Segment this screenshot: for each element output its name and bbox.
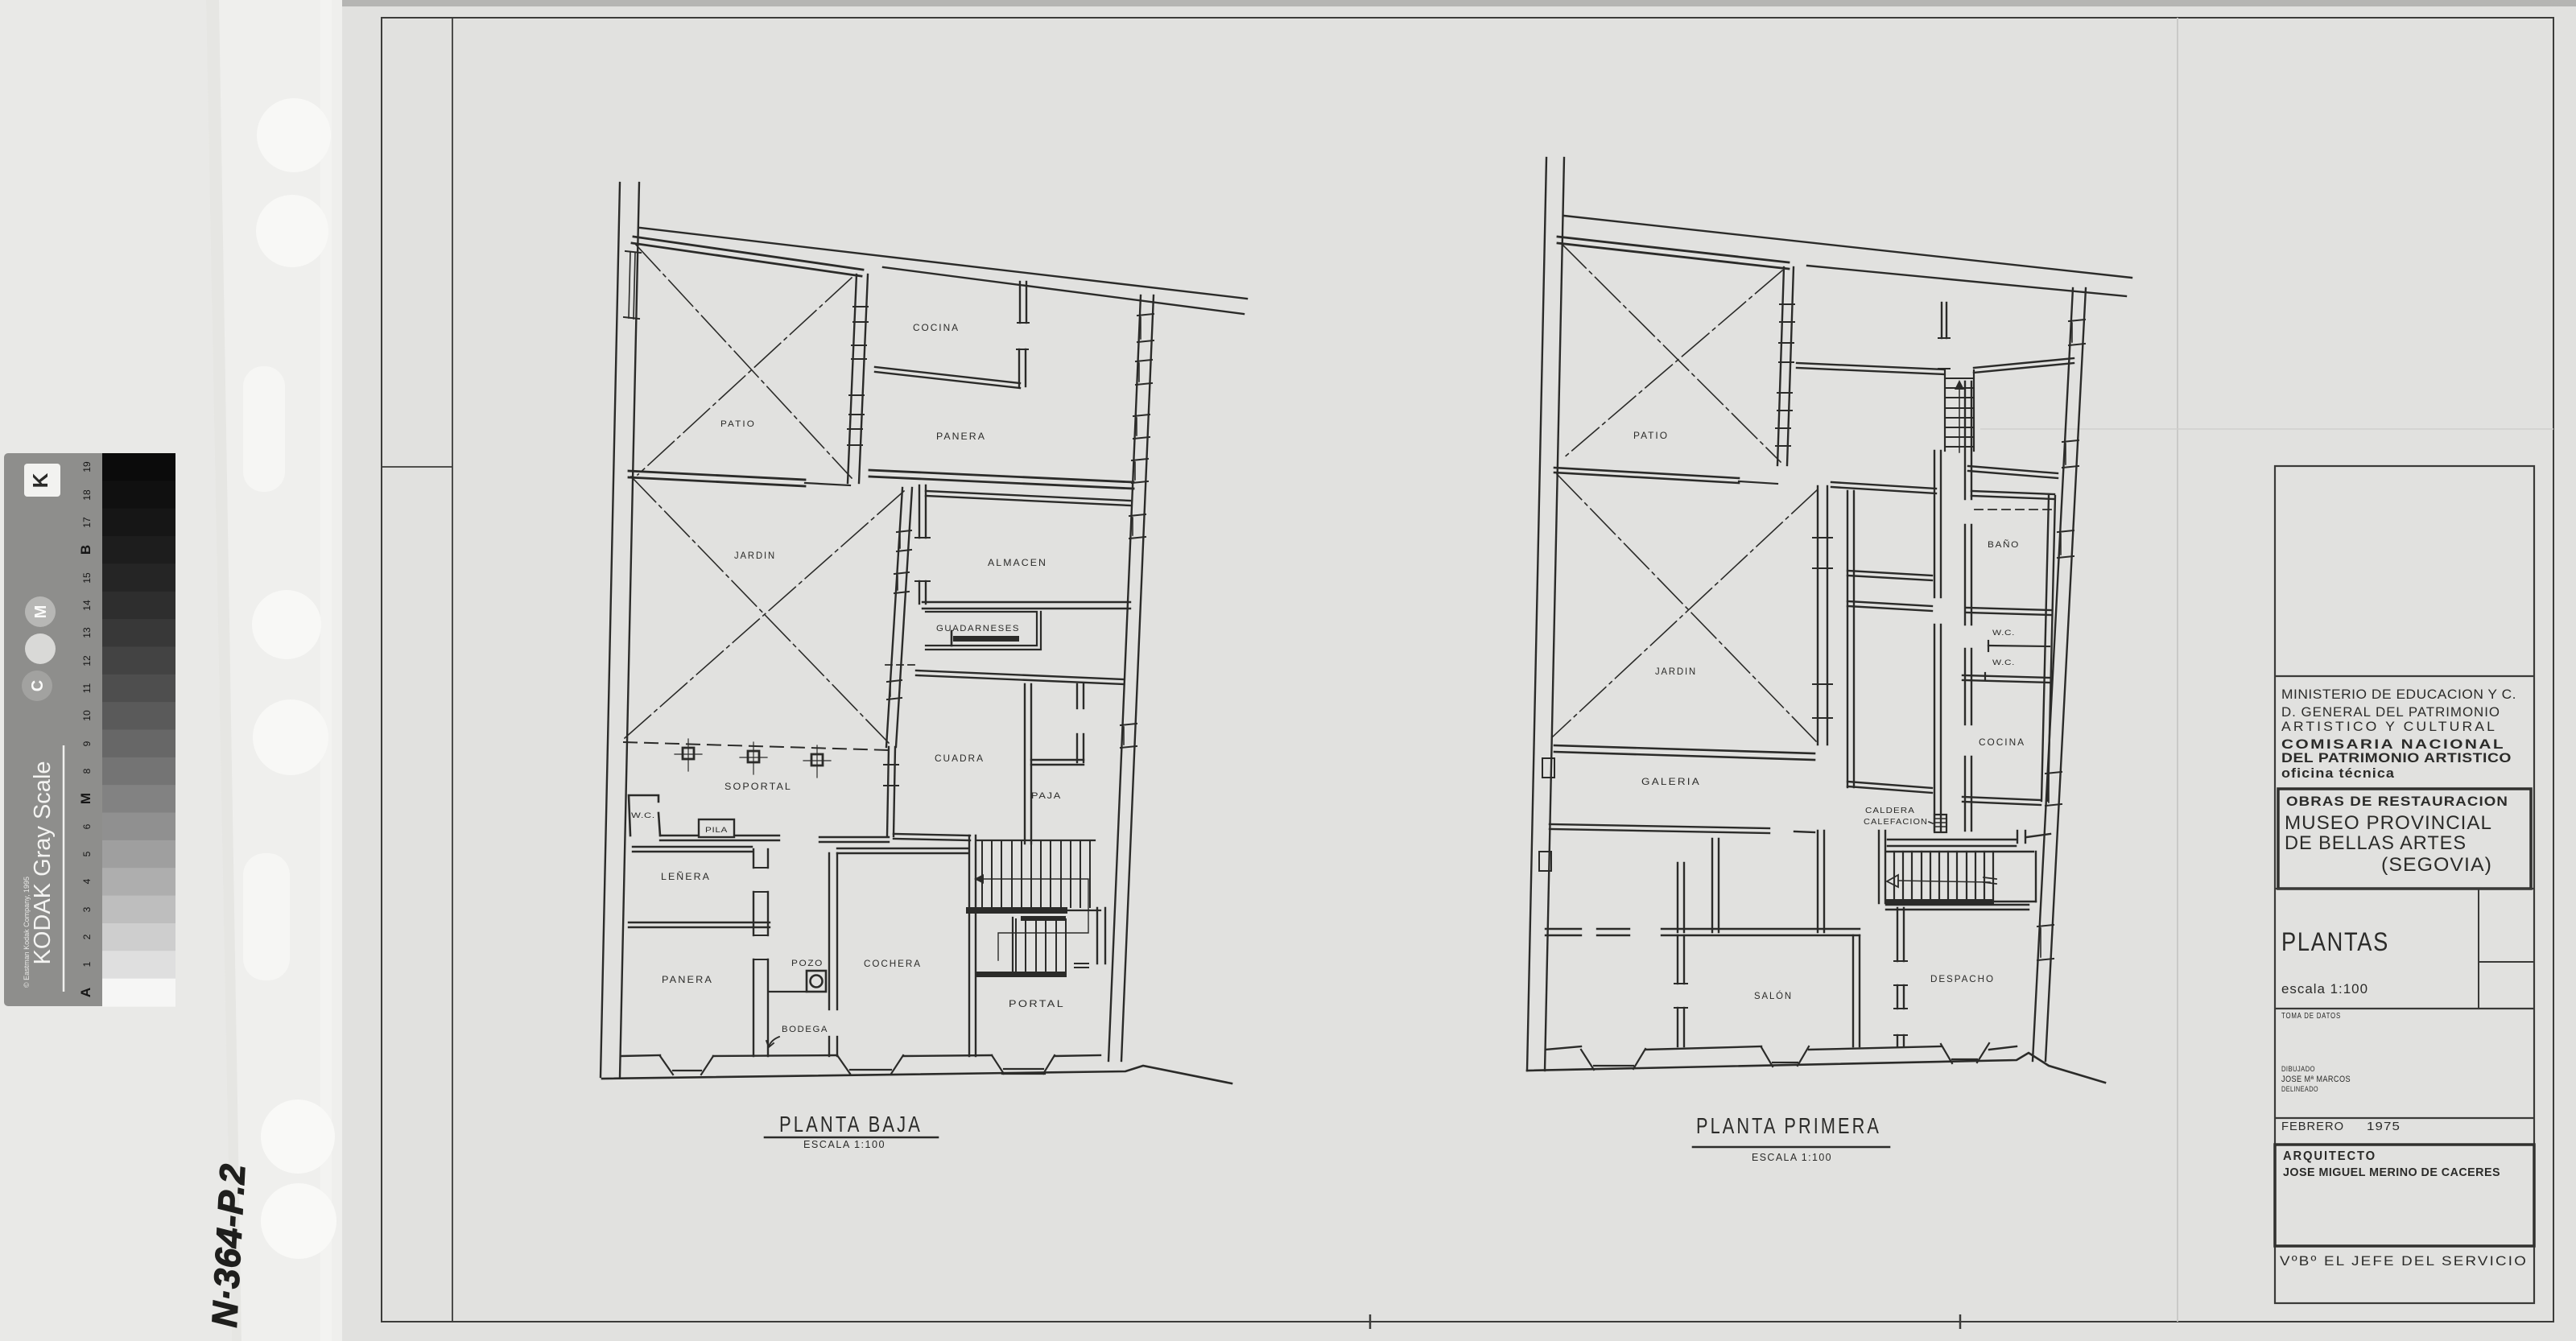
svg-text:COCINA: COCINA bbox=[1979, 737, 2025, 748]
svg-text:12: 12 bbox=[81, 655, 93, 666]
svg-text:MINISTERIO DE EDUCACION Y C.: MINISTERIO DE EDUCACION Y C. bbox=[2281, 687, 2516, 702]
svg-text:JOSE MIGUEL MERINO DE CACERES: JOSE MIGUEL MERINO DE CACERES bbox=[2283, 1166, 2500, 1179]
svg-text:18: 18 bbox=[81, 489, 93, 501]
svg-text:TOMA DE DATOS: TOMA DE DATOS bbox=[2281, 1012, 2341, 1021]
svg-text:FEBRERO: FEBRERO bbox=[2281, 1120, 2344, 1133]
svg-text:DE BELLAS ARTES: DE BELLAS ARTES bbox=[2285, 832, 2467, 854]
svg-text:COCINA: COCINA bbox=[913, 322, 960, 333]
svg-text:PATIO: PATIO bbox=[1633, 430, 1669, 441]
svg-text:(SEGOVIA): (SEGOVIA) bbox=[2381, 854, 2492, 876]
svg-text:1975: 1975 bbox=[2367, 1120, 2401, 1133]
svg-text:POZO: POZO bbox=[791, 959, 824, 968]
svg-text:M: M bbox=[32, 605, 50, 619]
svg-text:PANERA: PANERA bbox=[936, 431, 986, 442]
svg-text:ALMACEN: ALMACEN bbox=[988, 557, 1047, 568]
svg-text:B: B bbox=[78, 545, 93, 555]
svg-text:11: 11 bbox=[81, 683, 93, 693]
svg-text:© Eastman Kodak Company, 1995: © Eastman Kodak Company, 1995 bbox=[23, 877, 31, 988]
svg-text:JARDIN: JARDIN bbox=[734, 550, 776, 561]
svg-text:5: 5 bbox=[81, 851, 93, 856]
svg-text:13: 13 bbox=[81, 627, 93, 638]
svg-text:DELINEADO: DELINEADO bbox=[2281, 1085, 2318, 1093]
svg-text:BAÑO: BAÑO bbox=[1988, 539, 2020, 550]
svg-text:KODAK Gray Scale: KODAK Gray Scale bbox=[30, 761, 56, 964]
svg-text:oficina técnica: oficina técnica bbox=[2281, 765, 2395, 781]
svg-text:LEÑERA: LEÑERA bbox=[661, 871, 711, 882]
svg-text:GALERIA: GALERIA bbox=[1641, 776, 1701, 787]
svg-text:2: 2 bbox=[81, 934, 93, 939]
svg-text:PILA: PILA bbox=[705, 826, 728, 834]
svg-text:19: 19 bbox=[81, 461, 93, 472]
svg-text:3: 3 bbox=[81, 906, 93, 912]
svg-text:escala 1:100: escala 1:100 bbox=[2281, 981, 2368, 996]
svg-text:W.C.: W.C. bbox=[1992, 658, 2015, 666]
svg-text:ARTISTICO Y CULTURAL: ARTISTICO Y CULTURAL bbox=[2281, 719, 2497, 734]
svg-text:15: 15 bbox=[81, 572, 93, 584]
svg-text:8: 8 bbox=[81, 768, 93, 774]
svg-text:14: 14 bbox=[81, 600, 93, 611]
svg-text:17: 17 bbox=[81, 517, 93, 528]
svg-text:SALÓN: SALÓN bbox=[1754, 989, 1793, 1001]
svg-text:D. GENERAL DEL PATRIMONIO: D. GENERAL DEL PATRIMONIO bbox=[2281, 704, 2500, 720]
svg-text:MUSEO PROVINCIAL: MUSEO PROVINCIAL bbox=[2285, 812, 2492, 834]
svg-text:PLANTA PRIMERA: PLANTA PRIMERA bbox=[1696, 1113, 1881, 1138]
svg-text:W.C.: W.C. bbox=[631, 811, 655, 819]
svg-text:CALDERA: CALDERA bbox=[1865, 807, 1915, 815]
svg-text:ARQUITECTO: ARQUITECTO bbox=[2283, 1149, 2376, 1163]
svg-text:9: 9 bbox=[81, 741, 93, 746]
svg-text:W.C.: W.C. bbox=[1992, 629, 2015, 637]
svg-text:COCHERA: COCHERA bbox=[864, 958, 922, 969]
svg-text:CUADRA: CUADRA bbox=[935, 753, 985, 764]
svg-text:JOSE Mª MARCOS: JOSE Mª MARCOS bbox=[2281, 1075, 2351, 1084]
svg-text:PLANTAS: PLANTAS bbox=[2281, 927, 2389, 956]
svg-text:K: K bbox=[28, 472, 52, 488]
svg-text:PANERA: PANERA bbox=[662, 974, 713, 985]
svg-text:1: 1 bbox=[81, 961, 93, 967]
svg-text:PLANTA BAJA: PLANTA BAJA bbox=[779, 1112, 923, 1137]
svg-text:OBRAS DE RESTAURACION: OBRAS DE RESTAURACION bbox=[2286, 794, 2508, 809]
svg-text:ESCALA 1:100: ESCALA 1:100 bbox=[1752, 1151, 1832, 1163]
svg-text:M: M bbox=[78, 793, 93, 804]
svg-text:C: C bbox=[29, 680, 47, 691]
svg-text:PATIO: PATIO bbox=[720, 419, 756, 429]
svg-text:10: 10 bbox=[81, 710, 93, 721]
svg-text:VºBº EL JEFE DEL SERVICIO: VºBº EL JEFE DEL SERVICIO bbox=[2280, 1253, 2528, 1269]
svg-text:DEL PATRIMONIO ARTISTICO: DEL PATRIMONIO ARTISTICO bbox=[2281, 750, 2512, 765]
svg-text:6: 6 bbox=[81, 823, 93, 829]
svg-text:4: 4 bbox=[81, 878, 93, 884]
svg-text:GUADARNESES: GUADARNESES bbox=[936, 624, 1020, 633]
svg-text:JARDIN: JARDIN bbox=[1655, 666, 1697, 677]
svg-text:CALEFACION: CALEFACION bbox=[1864, 818, 1928, 827]
svg-text:A: A bbox=[78, 988, 93, 997]
svg-text:PORTAL: PORTAL bbox=[1009, 998, 1065, 1009]
svg-text:DIBUJADO: DIBUJADO bbox=[2281, 1065, 2315, 1073]
svg-text:DESPACHO: DESPACHO bbox=[1930, 973, 1995, 984]
svg-text:PAJA: PAJA bbox=[1031, 791, 1062, 801]
svg-text:SOPORTAL: SOPORTAL bbox=[724, 781, 792, 792]
svg-text:BODEGA: BODEGA bbox=[782, 1025, 828, 1034]
svg-text:ESCALA 1:100: ESCALA 1:100 bbox=[803, 1138, 885, 1150]
